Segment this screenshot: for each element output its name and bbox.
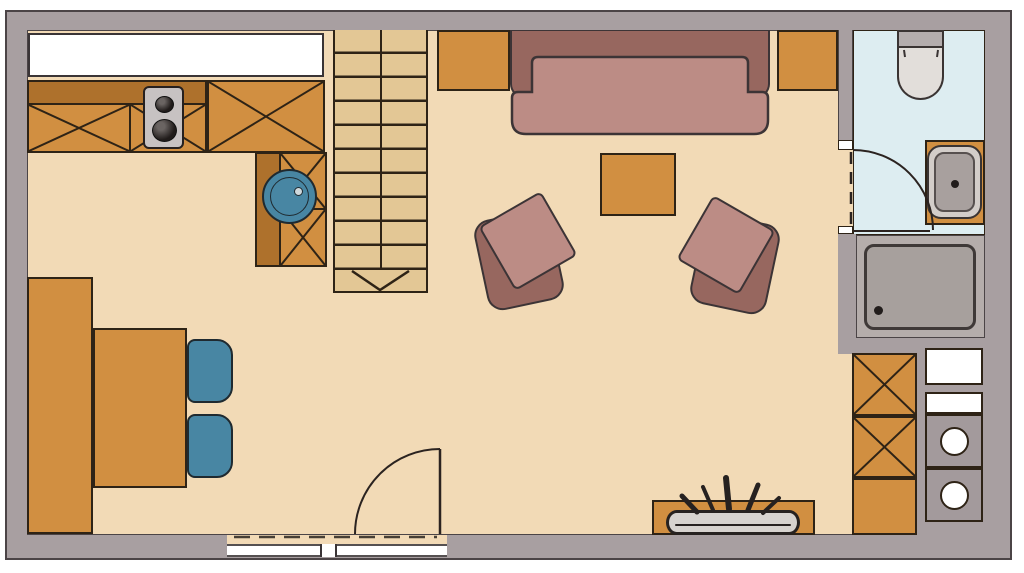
dining-chair-1 — [187, 339, 233, 403]
sofa-seat — [505, 48, 775, 143]
utility-cabinet-plain — [852, 478, 917, 535]
dining-table — [93, 328, 187, 488]
cabinet-x-mark — [854, 418, 915, 476]
floor-plan-canvas — [0, 0, 1024, 573]
dining-bench — [27, 277, 93, 534]
bathroom-door-jamb-top — [838, 140, 853, 150]
staircase — [333, 30, 428, 293]
coffee-table — [600, 153, 676, 216]
bottom-window-band — [227, 544, 447, 557]
bathroom-wall-stub — [838, 30, 853, 140]
kitchen-cabinet-x-large — [207, 80, 325, 153]
armchair-right — [684, 206, 779, 318]
toilet-tank — [897, 30, 944, 48]
plant-trough — [666, 510, 800, 535]
dining-chair-2 — [187, 414, 233, 478]
utility-counter-1 — [925, 348, 983, 385]
utility-cabinet-x-1 — [852, 353, 917, 416]
bottom-window-mullion — [320, 544, 337, 557]
cabinet-x-mark — [209, 82, 323, 151]
shower-drain — [874, 306, 883, 315]
cabinet-x-mark — [29, 105, 129, 151]
kitchen-worktop-window — [28, 33, 324, 77]
plant-trough-inner-line — [675, 524, 791, 526]
washbasin-drain — [951, 180, 959, 188]
kitchen-cabinet-x-1 — [27, 103, 131, 153]
sideboard-left-of-sofa — [437, 30, 510, 91]
bathroom-door-jamb-bottom — [838, 226, 853, 234]
stair-direction-arrow — [335, 270, 426, 291]
shower-enclosure-wall-left — [838, 234, 856, 354]
shower-pan — [864, 244, 976, 330]
utility-counter-2 — [925, 392, 983, 414]
appliance-2-door — [940, 481, 969, 510]
kitchen-sink-basin-ring — [270, 177, 309, 216]
kitchen-sink-faucet-hole — [294, 187, 303, 196]
appliance-1 — [925, 414, 983, 468]
stove-burner-large — [152, 119, 177, 142]
sideboard-right-of-sofa — [777, 30, 838, 91]
toilet-bowl — [897, 47, 944, 100]
armchair-left — [476, 202, 571, 314]
stove-burner-small — [155, 96, 174, 113]
cabinet-x-mark — [854, 355, 915, 414]
appliance-2 — [925, 468, 983, 522]
utility-cabinet-x-2 — [852, 416, 917, 478]
stair-center-line — [380, 30, 382, 270]
appliance-1-door — [940, 427, 969, 456]
